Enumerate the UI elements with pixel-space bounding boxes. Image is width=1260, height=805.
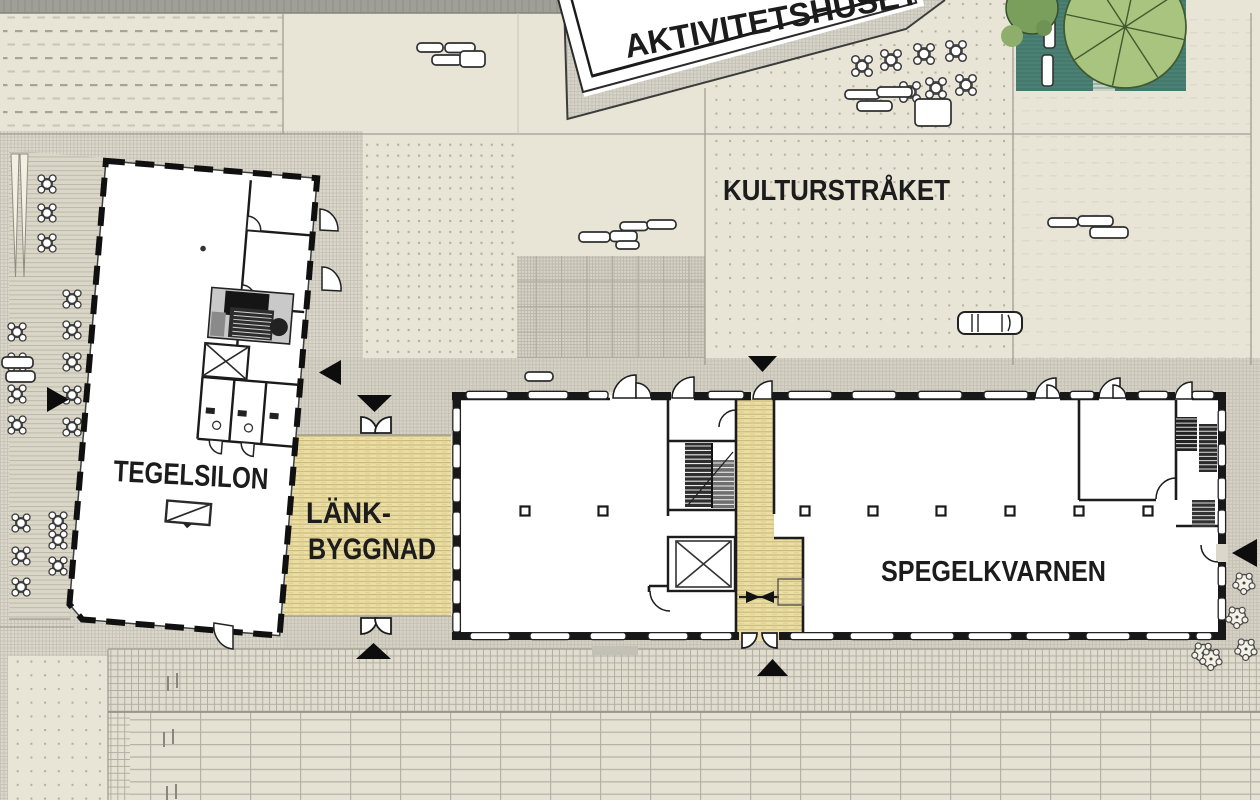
svg-text:BYGGNAD: BYGGNAD	[308, 533, 436, 566]
svg-text:KULTURSTRÅKET: KULTURSTRÅKET	[723, 174, 950, 207]
svg-text:SPEGELKVARNEN: SPEGELKVARNEN	[881, 556, 1106, 588]
svg-text:LÄNK-: LÄNK-	[306, 497, 391, 530]
